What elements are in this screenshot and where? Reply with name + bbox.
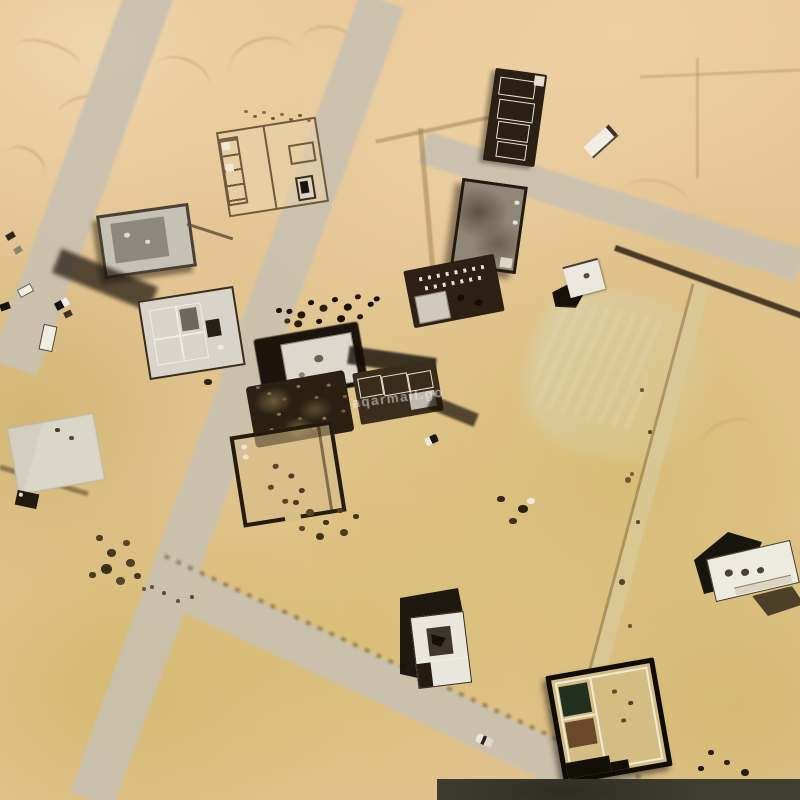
room-outline <box>498 77 536 100</box>
stair-shadow <box>431 632 447 648</box>
roof-speck <box>512 220 518 225</box>
scrub-dots-junction <box>150 585 154 589</box>
car-dark <box>63 310 73 319</box>
room-roof <box>241 444 248 450</box>
room-outline <box>495 141 527 161</box>
roof-opening <box>724 569 733 578</box>
courtyard-dark <box>426 626 453 657</box>
scrub-dots-track <box>640 388 644 392</box>
car-dark <box>5 231 16 241</box>
room-brown <box>565 718 598 749</box>
construction-bottom-right <box>545 657 672 784</box>
vehicle-cluster-west <box>0 230 90 360</box>
satellite-map[interactable]: aqarmall.go <box>0 0 800 800</box>
room-interior-gray <box>179 307 199 331</box>
house-center-left <box>137 286 245 380</box>
roof-speck <box>514 200 520 205</box>
room-roof <box>242 454 249 460</box>
van-white <box>38 324 57 352</box>
notch-dark <box>417 662 434 688</box>
roof-slab <box>534 75 545 86</box>
scrub-cluster <box>96 535 103 541</box>
pad-dots <box>55 428 60 432</box>
scrub-cluster <box>293 500 299 505</box>
compound-room-southeast <box>295 175 317 202</box>
walled-compound-center <box>229 420 346 527</box>
car-gray <box>13 245 23 254</box>
debris <box>474 299 483 306</box>
car-black <box>0 302 11 312</box>
roof-speck <box>217 344 224 350</box>
roof-vent <box>583 273 590 279</box>
slab-mark <box>314 354 324 362</box>
scrub-cluster <box>708 750 714 755</box>
roof-slab <box>499 257 512 269</box>
room-outline <box>497 99 535 124</box>
roof-slab <box>414 291 451 325</box>
equipment-speck <box>19 492 24 497</box>
room-roof <box>222 141 231 150</box>
room-outline <box>496 121 530 143</box>
debris <box>272 463 279 469</box>
bottom-overlay-bar <box>437 779 800 800</box>
small-object <box>204 379 212 385</box>
room-interior-dark <box>300 181 310 194</box>
car-two-tone <box>54 297 70 311</box>
debris-row <box>244 110 248 113</box>
inner-wall <box>317 426 333 509</box>
courtyard-dark <box>205 319 221 338</box>
roof-opening <box>740 568 749 577</box>
roof-inner <box>110 216 169 263</box>
roof-opening <box>756 567 764 574</box>
white-house-bottom-center <box>410 611 472 689</box>
debris <box>457 294 465 301</box>
ground-marks <box>497 496 505 502</box>
walled-compound-north <box>216 117 329 218</box>
room-dark-green <box>558 682 592 717</box>
compound-wall <box>262 127 277 208</box>
compound-rooms-east <box>288 141 317 165</box>
shadow-step <box>610 759 629 771</box>
room-roof <box>225 163 234 172</box>
car-white <box>17 283 34 298</box>
